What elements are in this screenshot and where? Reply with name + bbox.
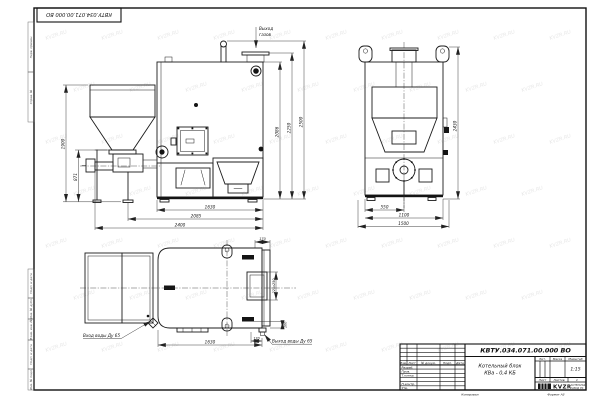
dim-550: 550 bbox=[381, 205, 389, 210]
watermark: KVZR.RU bbox=[437, 133, 460, 146]
fan-flange bbox=[159, 149, 164, 154]
watermark: KVZR.RU bbox=[353, 289, 376, 302]
outlet-stub bbox=[259, 328, 266, 332]
watermark: KVZR.RU bbox=[157, 341, 180, 354]
watermark: KVZR.RU bbox=[549, 237, 572, 250]
watermark: KVZR.RU bbox=[101, 237, 124, 250]
copied-label: Копировал bbox=[461, 392, 478, 396]
watermark: KVZR.RU bbox=[493, 29, 516, 42]
watermark: KVZR.RU bbox=[129, 289, 152, 302]
side-fitting-upper bbox=[444, 127, 449, 133]
watermark: KVZR.RU bbox=[45, 341, 68, 354]
logo-icon bbox=[538, 384, 551, 390]
watermark: KVZR.RU bbox=[213, 29, 236, 42]
watermark: KVZR.RU bbox=[297, 81, 320, 94]
watermark: KVZR.RU bbox=[493, 237, 516, 250]
watermark: KVZR.RU bbox=[325, 237, 348, 250]
watermark: KVZR.RU bbox=[213, 133, 236, 146]
sheets-label: Листов bbox=[552, 378, 564, 382]
dim-stub-170: 170 bbox=[253, 336, 259, 340]
watermark: KVZR.RU bbox=[185, 289, 208, 302]
watermark: KVZR.RU bbox=[73, 289, 96, 302]
corner-stamp-doc-number: КВТУ.034.071.00.000 ВО bbox=[46, 11, 112, 17]
watermark: KVZR.RU bbox=[73, 185, 96, 198]
margin-label: Подп. и дата bbox=[29, 273, 33, 294]
dim-2085: 2085 bbox=[191, 214, 202, 219]
sheet-label: Лист bbox=[538, 378, 547, 382]
side-view: 2430 550 1100 1500 bbox=[358, 42, 460, 228]
gas-outlet-flange bbox=[253, 68, 259, 74]
fitting-bottom-right bbox=[242, 317, 254, 322]
watermark: KVZR.RU bbox=[465, 289, 488, 302]
watermark: KVZR.RU bbox=[185, 81, 208, 94]
dim-2500: 2500 bbox=[299, 116, 304, 127]
watermark: KVZR.RU bbox=[241, 185, 264, 198]
watermark: KVZR.RU bbox=[101, 29, 124, 42]
dim-2430: 2430 bbox=[453, 120, 458, 131]
dim-100: 100 bbox=[284, 322, 288, 328]
gas-label-line2: газов bbox=[259, 32, 272, 37]
col-data: Дата bbox=[455, 361, 464, 365]
water-inlet-note: Вход воды Ду 65 bbox=[83, 321, 151, 339]
margin-boxes: Перв. примен. Справ. № Подп. и дата Инв.… bbox=[28, 22, 34, 390]
dim-door: 225x250 bbox=[272, 279, 276, 294]
title-block: Изм. Лист № докум. Подп. Дата Разраб. Пр… bbox=[400, 344, 586, 396]
margin-label: Взам. инв. № bbox=[29, 319, 33, 339]
drawer-strip bbox=[177, 328, 208, 332]
scale-value: 1:15 bbox=[570, 367, 580, 373]
watermark: KVZR.RU bbox=[45, 29, 68, 42]
watermark: KVZR.RU bbox=[157, 29, 180, 42]
watermark: KVZR.RU bbox=[521, 185, 544, 198]
watermark: KVZR.RU bbox=[325, 133, 348, 146]
dim-2086: 2086 bbox=[275, 126, 280, 137]
dim-top-1630: 1630 bbox=[205, 340, 216, 345]
watermark: KVZR.RU bbox=[129, 81, 152, 94]
title-doc-number: КВТУ.034.071.00.000 ВО bbox=[480, 347, 571, 355]
watermark: KVZR.RU bbox=[297, 185, 320, 198]
watermark: KVZR.RU bbox=[493, 133, 516, 146]
hopper-rear bbox=[372, 87, 437, 118]
watermark: KVZR.RU bbox=[381, 29, 404, 42]
watermark: KVZR.RU bbox=[409, 81, 432, 94]
watermark: KVZR.RU bbox=[213, 341, 236, 354]
sheets-value: 1 bbox=[576, 378, 578, 382]
water-outlet-note: Выход воды Ду 65 bbox=[265, 335, 313, 345]
boiler-door bbox=[171, 127, 208, 155]
margin-label: Перв. примен. bbox=[29, 36, 33, 59]
side-fitting-lower bbox=[443, 150, 448, 155]
watermark: KVZR.RU bbox=[465, 81, 488, 94]
lifting-lug-left bbox=[359, 46, 372, 62]
watermark: KVZR.RU bbox=[129, 185, 152, 198]
watermark: KVZR.RU bbox=[521, 81, 544, 94]
hatch-left bbox=[376, 169, 389, 182]
margin-label: Справ. № bbox=[29, 90, 33, 105]
drawing-name-line1: Котельный блок bbox=[478, 364, 521, 370]
fitting-left bbox=[164, 286, 175, 291]
dim-2400: 2400 bbox=[175, 223, 186, 228]
boiler-body bbox=[156, 41, 269, 197]
watermark: KVZR.RU bbox=[521, 289, 544, 302]
fuel-hopper bbox=[90, 85, 155, 172]
lifting-lug-right bbox=[436, 46, 449, 62]
col-doc: № докум. bbox=[420, 361, 436, 365]
watermark: KVZR.RU bbox=[45, 237, 68, 250]
hatch-right bbox=[419, 169, 432, 182]
drawing-sheet: KVZR.RUKVZR.RUKVZR.RUKVZR.RUKVZR.RUKVZR.… bbox=[0, 0, 600, 400]
watermark: KVZR.RU bbox=[549, 133, 572, 146]
watermark: KVZR.RU bbox=[101, 341, 124, 354]
drawing-name-line2: КВа - 0,4 КБ bbox=[484, 371, 516, 377]
logo-text: KVZR bbox=[553, 385, 572, 391]
dim-871: 871 bbox=[73, 173, 78, 181]
watermark: KVZR.RU bbox=[185, 185, 208, 198]
chimney-flange bbox=[242, 52, 269, 55]
watermark: KVZR.RU bbox=[325, 29, 348, 42]
row-tkontr: Т.контр. bbox=[402, 374, 415, 378]
watermark: KVZR.RU bbox=[549, 29, 572, 42]
watermark-layer: KVZR.RUKVZR.RUKVZR.RUKVZR.RUKVZR.RUKVZR.… bbox=[45, 29, 572, 354]
watermark: KVZR.RU bbox=[437, 237, 460, 250]
row-utv: Утв. bbox=[402, 386, 408, 390]
margin-label: Инв. № подл. bbox=[29, 369, 33, 390]
safety-valve bbox=[221, 41, 227, 47]
dim-2250: 2250 bbox=[287, 122, 292, 133]
sight-glass bbox=[194, 103, 198, 107]
margin-label: Инв. № дубл. bbox=[29, 298, 33, 319]
inlet-label: Вход воды Ду 65 bbox=[83, 333, 120, 338]
mass-label: Масса bbox=[553, 357, 563, 361]
base-frame bbox=[157, 197, 263, 202]
watermark: KVZR.RU bbox=[465, 185, 488, 198]
front-view: Выход газов 1900 871 2086 2250 2500 bbox=[60, 26, 306, 230]
watermark: KVZR.RU bbox=[73, 81, 96, 94]
watermark: KVZR.RU bbox=[381, 341, 404, 354]
dim-top-170: 170 bbox=[259, 237, 265, 241]
watermark: KVZR.RU bbox=[297, 289, 320, 302]
format-label: Формат А3 bbox=[547, 392, 564, 396]
col-podp: Подп. bbox=[443, 361, 452, 365]
watermark: KVZR.RU bbox=[437, 29, 460, 42]
logo-line2: ЗАВОД РФ bbox=[571, 387, 583, 390]
watermark: KVZR.RU bbox=[269, 237, 292, 250]
watermark: KVZR.RU bbox=[241, 81, 264, 94]
dim-1630: 1630 bbox=[205, 205, 216, 210]
dim-1100: 1100 bbox=[399, 213, 410, 218]
watermark: KVZR.RU bbox=[101, 133, 124, 146]
dim-1900: 1900 bbox=[60, 138, 65, 149]
watermark: KVZR.RU bbox=[269, 29, 292, 42]
fitting-top-right bbox=[242, 255, 254, 260]
watermark: KVZR.RU bbox=[325, 341, 348, 354]
corner-stamp: КВТУ.034.071.00.000 ВО bbox=[37, 8, 121, 22]
watermark: KVZR.RU bbox=[409, 289, 432, 302]
drain-fitting bbox=[259, 147, 264, 152]
gas-label-line1: Выход bbox=[259, 26, 273, 31]
scale-label: Масштаб bbox=[568, 357, 582, 361]
front-dimensions: 1900 871 2086 2250 2500 1630 2085 2400 bbox=[60, 41, 306, 230]
dim-1500: 1500 bbox=[398, 221, 409, 226]
lit-label: Лит. bbox=[538, 357, 546, 361]
watermark: KVZR.RU bbox=[381, 237, 404, 250]
watermark: KVZR.RU bbox=[269, 133, 292, 146]
watermark: KVZR.RU bbox=[353, 81, 376, 94]
margin-label: Подп. и дата bbox=[29, 344, 33, 365]
outlet-label: Выход воды Ду 65 bbox=[272, 339, 313, 344]
